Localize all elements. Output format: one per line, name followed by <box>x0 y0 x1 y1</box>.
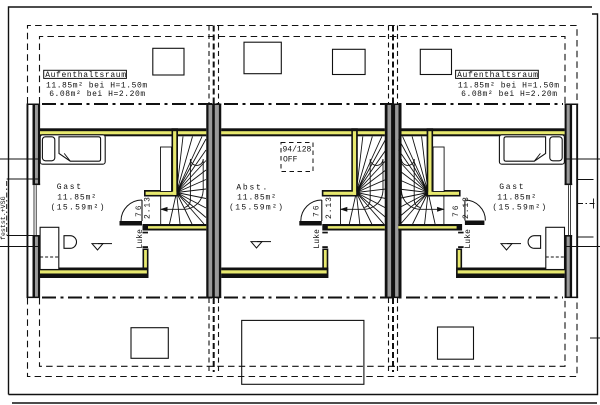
svg-text:(15.59m²): (15.59m²) <box>229 203 284 212</box>
svg-text:76: 76 <box>135 203 144 217</box>
svg-text:(15.59m²): (15.59m²) <box>492 203 547 212</box>
svg-text:Luke: Luke <box>313 229 322 249</box>
svg-text:Abst.: Abst. <box>236 183 269 192</box>
svg-text:Aufenthaltsraum: Aufenthaltsraum <box>45 71 126 80</box>
svg-text:94/128: 94/128 <box>283 146 312 155</box>
svg-text:festst.+VSG: festst.+VSG <box>0 196 7 240</box>
svg-text:76: 76 <box>452 203 461 217</box>
svg-text:Luke: Luke <box>464 229 473 249</box>
svg-text:Gast: Gast <box>499 183 525 192</box>
svg-text:11.85m²: 11.85m² <box>497 193 537 202</box>
svg-text:6.08m² bei H=2.20m: 6.08m² bei H=2.20m <box>461 90 557 99</box>
svg-text:2.13: 2.13 <box>144 196 153 219</box>
svg-text:2.13: 2.13 <box>325 196 334 219</box>
svg-text:76: 76 <box>312 203 321 217</box>
svg-text:11.85m²: 11.85m² <box>237 193 277 202</box>
svg-text:(15.59m²): (15.59m²) <box>51 203 106 212</box>
svg-text:11.85m²: 11.85m² <box>57 193 97 202</box>
svg-text:2.13: 2.13 <box>462 196 471 219</box>
svg-text:Gast: Gast <box>57 183 83 192</box>
svg-text:Luke: Luke <box>136 229 145 249</box>
svg-text:OFF: OFF <box>283 156 298 165</box>
svg-text:6.08m² bei H=2.20m: 6.08m² bei H=2.20m <box>49 90 146 99</box>
svg-text:Aufenthaltsraum: Aufenthaltsraum <box>457 71 538 80</box>
